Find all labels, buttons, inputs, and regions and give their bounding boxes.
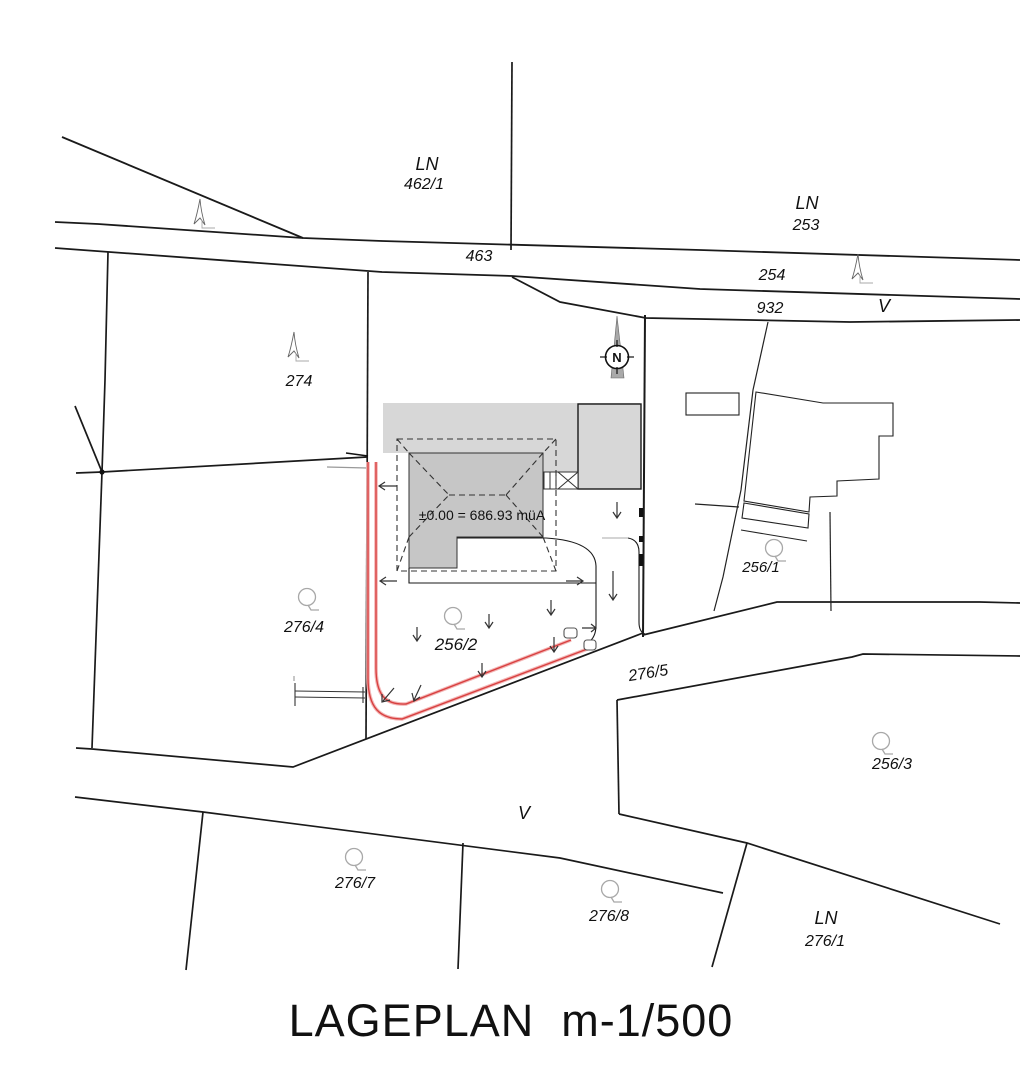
slope-arrow <box>413 627 421 641</box>
parcel-label-276-7: 276/7 <box>334 875 376 892</box>
boundary-274-west <box>102 252 108 472</box>
road-label-932: 932 <box>757 300 784 317</box>
parcel-label-ln253-number: 253 <box>792 217 820 234</box>
boundary-tick <box>346 453 368 456</box>
parcel-label-ln462-number: 462/1 <box>404 176 444 193</box>
boundary-south-main <box>76 633 643 767</box>
boundary-274-south <box>102 457 367 472</box>
conifer-icon <box>852 254 873 283</box>
parcel-label-256-3: 256/3 <box>871 756 912 773</box>
stairs-symbol <box>544 472 578 489</box>
drawing-title: LAGEPLAN m-1/500 <box>0 995 1022 1047</box>
road-label-v-top: V <box>878 296 892 316</box>
slope-arrow <box>582 624 596 632</box>
boundary-276-7-west <box>186 812 203 970</box>
road-label-254: 254 <box>758 267 786 284</box>
boundary-ln462-east <box>511 62 512 250</box>
boundary-256-2-east <box>643 315 645 637</box>
parcel-label-276-8: 276/8 <box>588 908 629 925</box>
slope-arrow <box>547 600 555 615</box>
garage-outline <box>578 404 641 489</box>
conifer-icon <box>288 332 309 361</box>
fence-symbol <box>294 676 365 706</box>
boundary-256-3-south <box>619 814 1000 924</box>
parcel-label-274: 274 <box>285 373 313 390</box>
slope-arrow <box>609 571 617 600</box>
road-label-463: 463 <box>466 248 493 265</box>
gray-stub-line <box>327 467 367 468</box>
tree-icon <box>445 608 466 630</box>
parcel-label-ln462-type: LN <box>415 154 439 174</box>
parcel-label-276-4: 276/4 <box>283 619 324 636</box>
tree-icon <box>346 849 367 871</box>
site-plan-drawing: ±0.00 = 686.93 müA <box>0 0 1022 1080</box>
wall-marks <box>639 508 643 566</box>
road-north-edge <box>55 222 1020 260</box>
slope-arrow <box>485 614 493 628</box>
parcel-label-276-5: 276/5 <box>626 662 669 685</box>
parcel-label-ln276-number: 276/1 <box>804 933 845 950</box>
slope-arrow <box>380 577 397 585</box>
gate-post-marker <box>564 628 577 638</box>
boundary-276-4-west <box>92 472 102 748</box>
road-diagonal-line <box>62 137 303 238</box>
boundary-256-3-west <box>617 700 619 814</box>
tree-icon <box>299 589 320 611</box>
elevation-annotation: ±0.00 = 686.93 müA <box>419 507 546 523</box>
fence-stub-line <box>695 504 739 507</box>
boundary-276-7-east <box>458 843 463 969</box>
neighbor-building <box>686 392 893 541</box>
north-arrow-label: N <box>612 350 621 365</box>
parcel-label-256-2: 256/2 <box>434 635 478 654</box>
conifer-icon <box>194 199 215 228</box>
boundary-256-1-east <box>830 512 831 611</box>
tree-icon <box>766 540 787 562</box>
parcel-label-256-1: 256/1 <box>741 559 780 576</box>
boundary-276-8-east <box>712 843 747 967</box>
parcel-boundaries <box>75 62 1020 970</box>
parcel-label-ln276-type: LN <box>814 908 838 928</box>
tree-icon <box>873 733 894 755</box>
road-label-v-bottom: V <box>518 803 532 823</box>
tree-icon <box>602 881 623 903</box>
parcel-label-ln253-type: LN <box>795 193 819 213</box>
neighbor-building-annex <box>686 393 739 415</box>
site-plan-canvas: ±0.00 = 686.93 müA <box>0 0 1022 1080</box>
boundary-276-5-south <box>617 654 1020 700</box>
slope-arrow <box>613 502 621 518</box>
slope-arrow <box>566 577 583 585</box>
gate-post-marker <box>584 640 596 650</box>
slope-arrow <box>379 482 397 490</box>
boundary-point-marker <box>99 469 104 474</box>
north-arrow-icon: N <box>600 316 634 378</box>
road-lines <box>55 137 1020 322</box>
boundary-road-v-south <box>75 797 723 893</box>
